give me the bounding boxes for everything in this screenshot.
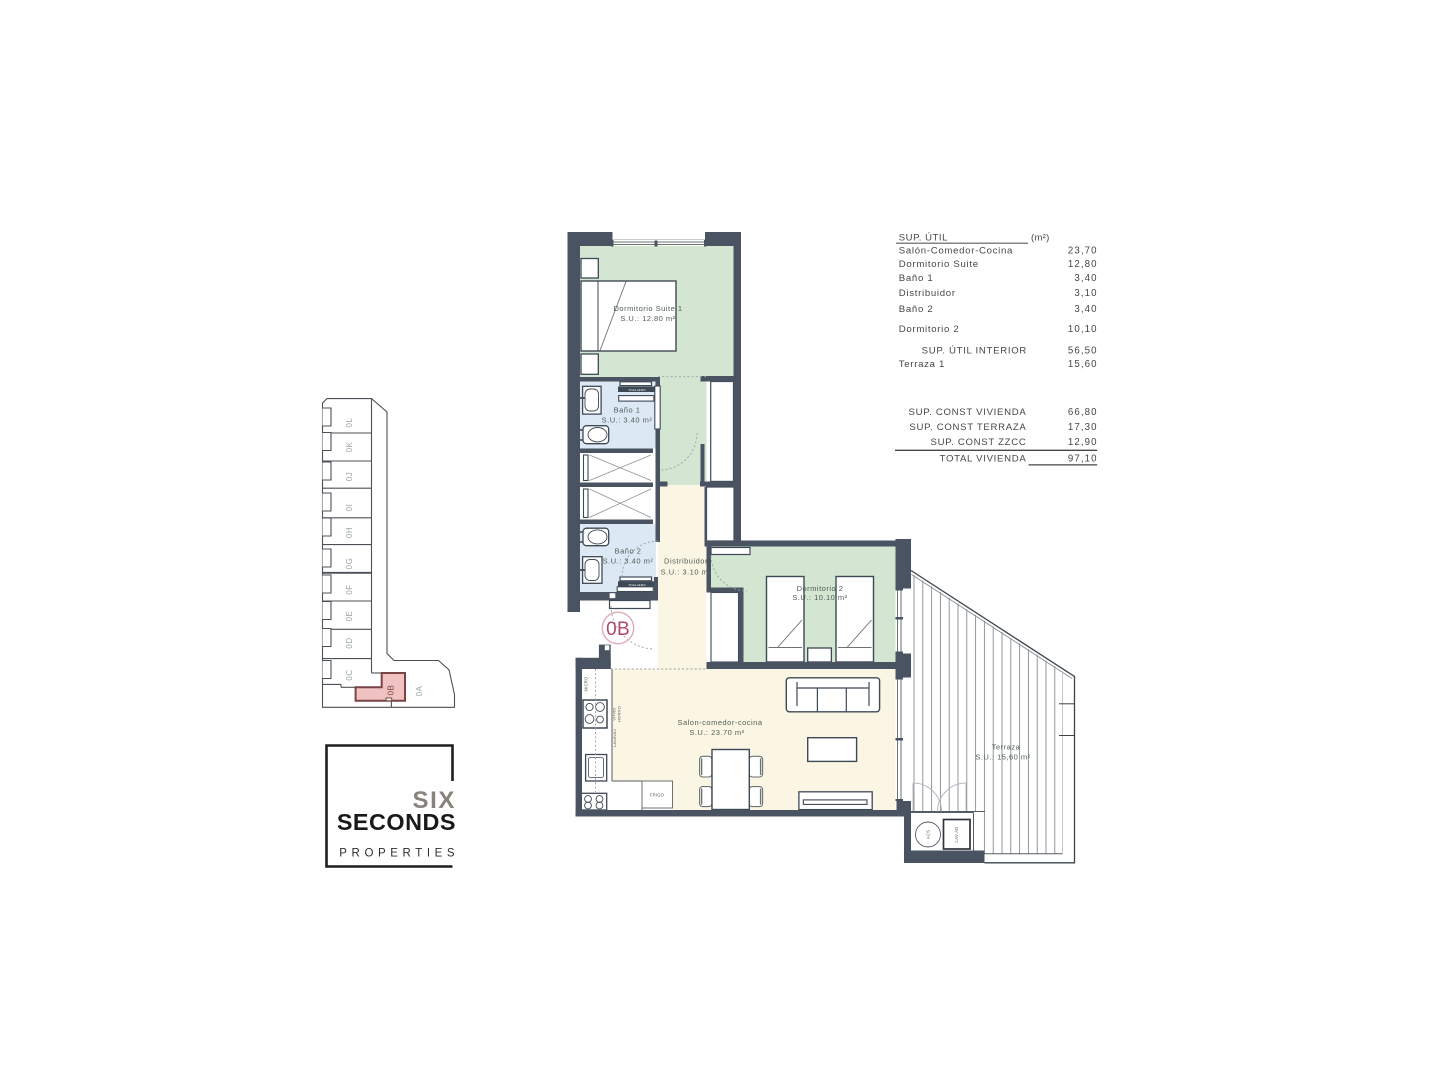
svg-text:S.U.: 3.10 m²: S.U.: 3.10 m² xyxy=(661,568,712,577)
svg-text:17,30: 17,30 xyxy=(1068,422,1098,433)
svg-text:SUP. CONST TERRAZA: SUP. CONST TERRAZA xyxy=(909,422,1026,433)
svg-text:0K: 0K xyxy=(345,441,354,452)
svg-text:0I: 0I xyxy=(345,504,354,512)
svg-text:HORNO: HORNO xyxy=(617,706,622,722)
svg-text:Baño 1: Baño 1 xyxy=(899,273,934,284)
svg-text:12,80: 12,80 xyxy=(1068,259,1098,270)
svg-text:Baño 1: Baño 1 xyxy=(614,406,641,415)
svg-text:0J: 0J xyxy=(345,472,354,481)
svg-text:TOTAL VIVIENDA: TOTAL VIVIENDA xyxy=(940,454,1027,465)
svg-text:0B: 0B xyxy=(606,619,630,640)
svg-text:0G: 0G xyxy=(345,558,354,570)
svg-text:TOALLERO: TOALLERO xyxy=(628,388,646,392)
svg-text:LAV AD: LAV AD xyxy=(954,827,959,843)
svg-text:SUP. ÚTIL INTERIOR: SUP. ÚTIL INTERIOR xyxy=(922,345,1027,356)
svg-text:Distribuidor: Distribuidor xyxy=(899,288,956,299)
svg-text:56,50: 56,50 xyxy=(1068,345,1098,356)
svg-text:0H: 0H xyxy=(345,527,354,538)
svg-text:TOALLERO: TOALLERO xyxy=(628,583,646,587)
svg-text:PROPERTIES: PROPERTIES xyxy=(339,848,459,860)
svg-text:Terraza: Terraza xyxy=(992,743,1021,752)
svg-text:15,60: 15,60 xyxy=(1068,359,1098,370)
svg-text:S.U.: 3.40 m²: S.U.: 3.40 m² xyxy=(602,416,653,425)
svg-text:S.U.: 10.10 m²: S.U.: 10.10 m² xyxy=(792,593,847,602)
svg-text:FRIGO: FRIGO xyxy=(650,793,665,798)
svg-text:3,40: 3,40 xyxy=(1074,304,1097,315)
svg-text:66,80: 66,80 xyxy=(1068,407,1098,418)
svg-text:97,10: 97,10 xyxy=(1068,454,1098,465)
svg-text:(m²): (m²) xyxy=(1031,232,1050,243)
svg-text:LAVAVAJ: LAVAVAJ xyxy=(612,729,617,747)
svg-text:Salón-Comedor-Cocina: Salón-Comedor-Cocina xyxy=(899,245,1013,256)
svg-text:Dormitorio 2: Dormitorio 2 xyxy=(797,584,844,593)
svg-text:0A: 0A xyxy=(415,685,424,696)
svg-text:SUP. CONST ZZCC: SUP. CONST ZZCC xyxy=(931,437,1027,448)
svg-text:0C: 0C xyxy=(345,669,354,680)
svg-text:0B: 0B xyxy=(387,685,396,696)
svg-text:Dormitorio Suite: Dormitorio Suite xyxy=(899,259,979,270)
svg-text:SUP. ÚTIL: SUP. ÚTIL xyxy=(899,232,948,243)
svg-text:Baño 2: Baño 2 xyxy=(615,547,642,556)
svg-text:S.U.: 12.80 m²: S.U.: 12.80 m² xyxy=(620,314,675,323)
svg-text:Salon-comedor-cocina: Salon-comedor-cocina xyxy=(677,718,762,727)
svg-text:0L: 0L xyxy=(345,418,354,428)
svg-text:Dormitorio Suite 1: Dormitorio Suite 1 xyxy=(613,304,682,313)
svg-text:3,10: 3,10 xyxy=(1074,288,1097,299)
svg-text:MICRO: MICRO xyxy=(584,676,589,691)
svg-text:0F: 0F xyxy=(345,584,354,594)
svg-text:23,70: 23,70 xyxy=(1068,245,1098,256)
svg-text:0D: 0D xyxy=(345,637,354,648)
svg-text:10,10: 10,10 xyxy=(1068,324,1098,335)
svg-text:Terraza 1: Terraza 1 xyxy=(899,359,945,370)
svg-text:S.U.: 23.70 m²: S.U.: 23.70 m² xyxy=(689,728,744,737)
svg-text:12,90: 12,90 xyxy=(1068,437,1098,448)
svg-text:S.U.: 15,60 m²: S.U.: 15,60 m² xyxy=(975,753,1030,762)
svg-text:Dormitorio 2: Dormitorio 2 xyxy=(899,324,960,335)
svg-text:SUP. CONST VIVIENDA: SUP. CONST VIVIENDA xyxy=(909,407,1027,418)
svg-text:0E: 0E xyxy=(345,611,354,622)
svg-text:S.U.: 3.40 m²: S.U.: 3.40 m² xyxy=(603,557,654,566)
svg-text:3,40: 3,40 xyxy=(1074,273,1097,284)
svg-text:Baño 2: Baño 2 xyxy=(899,304,934,315)
svg-text:SECONDS: SECONDS xyxy=(337,809,456,835)
svg-text:Distribuidor: Distribuidor xyxy=(664,557,708,566)
svg-text:ACS: ACS xyxy=(926,830,931,839)
